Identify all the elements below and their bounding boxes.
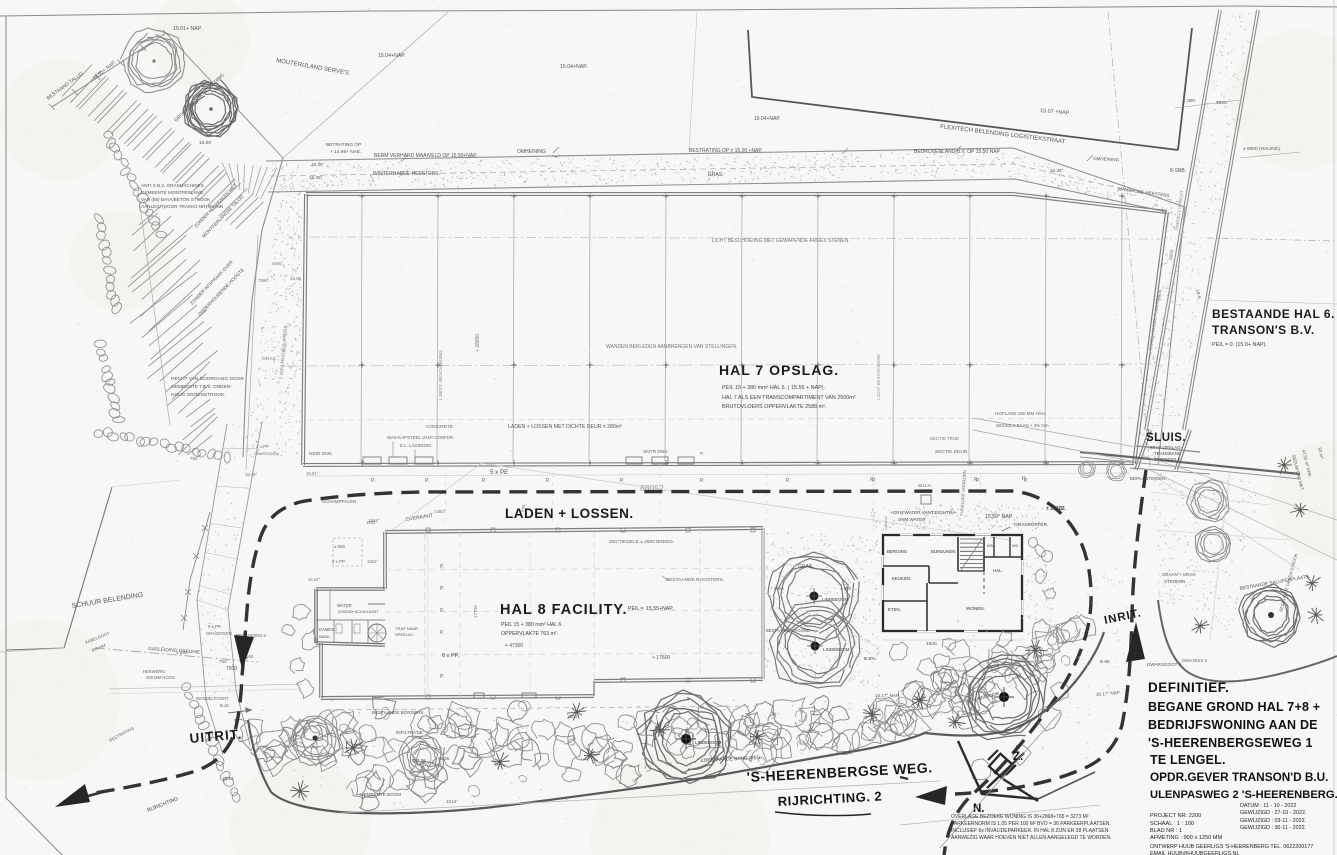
- svg-text:GEWIJZIGD : 03-11 - 2022.: GEWIJZIGD : 03-11 - 2022.: [1240, 818, 1306, 824]
- svg-text:BETRATING OP: BETRATING OP: [326, 142, 361, 148]
- svg-text:WINTERHARDE HEESTERS.: WINTERHARDE HEESTERS.: [373, 171, 440, 177]
- svg-text:HAL 8 FACILITY.: HAL 8 FACILITY.: [500, 602, 628, 618]
- svg-text:EMAIL HUUB@HUUBGEERLIGS.NL: EMAIL HUUB@HUUBGEERLIGS.NL: [1150, 851, 1239, 855]
- svg-text:SNM WATER: SNM WATER: [898, 517, 926, 522]
- svg-text:+ 47300: + 47300: [505, 643, 523, 649]
- svg-text:GRAS: GRAS: [798, 564, 813, 570]
- svg-text:HAL.: HAL.: [993, 568, 1003, 573]
- svg-text:15.45°: 15.45°: [309, 175, 322, 180]
- svg-text:± 650: ± 650: [334, 544, 346, 549]
- svg-text:'S-HEERENBERGSEWEG 1: 'S-HEERENBERGSEWEG 1: [1148, 736, 1313, 750]
- svg-text:+ 17600: + 17600: [652, 655, 670, 661]
- svg-text:1500.: 1500.: [926, 641, 938, 647]
- svg-text:W.U.H.: W.U.H.: [918, 483, 932, 488]
- svg-text:15.50° NAP.: 15.50° NAP.: [985, 514, 1013, 520]
- svg-text:BADK.: BADK.: [319, 634, 331, 639]
- svg-text:GEMEENTE BOOM: GEMEENTE BOOM: [360, 792, 401, 797]
- svg-text:P.: P.: [425, 478, 429, 484]
- svg-text:GEWIJZIGD : 30-11 - 2022.: GEWIJZIGD : 30-11 - 2022.: [1240, 825, 1306, 831]
- svg-text:BIJKEUKEN: BIJKEUKEN: [931, 549, 955, 554]
- svg-text:OPDR.GEVER TRANSON'D B.U.: OPDR.GEVER TRANSON'D B.U.: [1150, 770, 1328, 784]
- svg-text:GRASSTEEN: GRASSTEEN: [206, 631, 232, 636]
- svg-text:15.04+NAP.: 15.04+NAP.: [560, 64, 587, 70]
- svg-text:+GRIJ.WATER VANT EIGHTRA-: +GRIJ.WATER VANT EIGHTRA-: [890, 510, 957, 515]
- svg-text:SECTIE TRUE: SECTIE TRUE: [930, 436, 959, 441]
- svg-text:KEUKEN.: KEUKEN.: [892, 576, 911, 581]
- svg-text:WAS-KAPSTEEL VAN? CONFER.: WAS-KAPSTEEL VAN? CONFER.: [387, 435, 454, 440]
- svg-text:BESTAANDE AFGOND: BESTAANDE AFGOND: [766, 628, 810, 633]
- svg-text:15.04+NAP.: 15.04+NAP.: [754, 116, 780, 122]
- svg-text:B.36.: B.36.: [440, 756, 450, 761]
- svg-text:HAL 7 ALS EEN TRANSCOMPARTI: HAL 7 ALS EEN TRANSCOMPARTIMENT VAN 2500…: [722, 395, 856, 401]
- svg-text:SLUIS.: SLUIS.: [1146, 432, 1186, 444]
- svg-text:HAL 7 OPSLAG.: HAL 7 OPSLAG.: [719, 362, 839, 378]
- svg-text:DWA BUIS 2: DWA BUIS 2: [1182, 658, 1208, 663]
- svg-text:P.: P.: [870, 477, 874, 483]
- svg-text:P.: P.: [700, 451, 704, 457]
- svg-text:OPPERVLAKTE 763 m².: OPPERVLAKTE 763 m².: [501, 631, 558, 637]
- svg-text:HOUD GROENSTROOK.: HOUD GROENSTROOK.: [171, 392, 226, 398]
- svg-text:GEWIJZIGD : 27-10 - 2022.: GEWIJZIGD : 27-10 - 2022.: [1240, 810, 1307, 816]
- svg-text:5 x PP.: 5 x PP.: [208, 624, 222, 629]
- svg-text:WD: WD: [987, 544, 994, 548]
- svg-text:1662°: 1662°: [367, 559, 378, 564]
- svg-text:BRUTOVLOERS OPPERVLAKTE 258: BRUTOVLOERS OPPERVLAKTE 2588 m².: [722, 404, 826, 410]
- svg-text:LICHT BESCHOEIING: LICHT BESCHOEIING: [876, 353, 881, 400]
- svg-text:WANDELPOORT: WANDELPOORT: [196, 696, 229, 701]
- svg-text:4600: 4600: [272, 261, 282, 266]
- svg-text:RECHT VAN DOORGANG DOOR: RECHT VAN DOORGANG DOOR: [171, 376, 244, 382]
- svg-text:TE LENGEL.: TE LENGEL.: [1150, 753, 1226, 767]
- svg-text:BLAD NR : 1: BLAD NR : 1: [1150, 828, 1182, 834]
- svg-text:SCHAMPPALEN: SCHAMPPALEN: [322, 499, 356, 504]
- svg-text:750.: 750.: [190, 456, 199, 461]
- svg-text:SCHAAL : 1 : 100: SCHAAL : 1 : 100: [1150, 821, 1194, 827]
- svg-text:P.: P.: [440, 630, 444, 636]
- svg-text:15.35°: 15.35°: [311, 162, 324, 167]
- svg-text:750: 750: [219, 659, 227, 664]
- svg-text:ANTI X.B.2. GRASMACHINES: ANTI X.B.2. GRASMACHINES: [141, 183, 204, 188]
- svg-text:200 MM HOOG: 200 MM HOOG: [146, 675, 175, 680]
- svg-text:+ 28850: + 28850: [475, 334, 481, 352]
- svg-text:2 x PP.: 2 x PP.: [332, 559, 346, 564]
- svg-text:BERGING: BERGING: [887, 549, 908, 554]
- svg-text:PEIL = 0. (15.0+ NAP).: PEIL = 0. (15.0+ NAP).: [1212, 342, 1267, 348]
- svg-text:INCLUSIEF 6x INVALIDEPARKEER.: INCLUSIEF 6x INVALIDEPARKEER. IN HAL 8 Z…: [951, 828, 1109, 834]
- svg-text:1590°: 1590°: [567, 714, 579, 719]
- svg-text:1482°: 1482°: [434, 509, 446, 514]
- svg-text:LADEN + LOSSEN MET DIC: LADEN + LOSSEN MET DICHTE DEUR ± 280m²: [508, 424, 622, 430]
- svg-text:P.: P.: [546, 478, 550, 484]
- svg-text:R: R: [1022, 476, 1026, 482]
- svg-text:AFMETING : 900 x 1250 MM: AFMETING : 900 x 1250 MM: [1150, 835, 1222, 841]
- svg-text:BEPLANTINGEN:: BEPLANTINGEN:: [1130, 476, 1167, 481]
- svg-text:P.: P.: [440, 586, 444, 592]
- svg-text:+ 800: + 800: [840, 586, 852, 591]
- svg-text:PEIL 15 + 380 mm² HAL 6.: PEIL 15 + 380 mm² HAL 6.: [501, 622, 563, 628]
- svg-text:DWARSGOOT 2: DWARSGOOT 2: [1147, 662, 1182, 667]
- svg-text:NEIR DNK.: NEIR DNK.: [309, 451, 333, 457]
- svg-text:STROKEN: STROKEN: [1164, 579, 1185, 584]
- svg-text:BESTAANDE BORDERS: BESTAANDE BORDERS: [372, 710, 423, 715]
- svg-text:VAN (85) BAYA/BETON STROOK: VAN (85) BAYA/BETON STROOK: [141, 197, 211, 202]
- svg-text:PARKEERNORM IS 1.05 PER 100: PARKEERNORM IS 1.05 PER 100 M² BVO = 36 …: [951, 821, 1111, 827]
- svg-text:P.: P.: [700, 478, 704, 484]
- svg-text:BETONDELE: BETONDELE: [1154, 457, 1181, 462]
- svg-text:GRAS.: GRAS.: [262, 356, 277, 362]
- svg-text:INFILTRATIE: INFILTRATIE: [396, 730, 423, 735]
- svg-text:80 m² OPSLAG-: 80 m² OPSLAG-: [1150, 445, 1183, 450]
- svg-text:ONTWERP HUUB GEERLIGS 'S-: ONTWERP HUUB GEERLIGS 'S-HEERENBERG TEL.…: [1150, 844, 1313, 850]
- svg-text:B.16.: B.16.: [220, 703, 230, 708]
- svg-text:± 6000 (HALING).: ± 6000 (HALING).: [1243, 146, 1281, 152]
- svg-text:DAMES.: DAMES.: [319, 627, 335, 632]
- svg-text:6 x PP.: 6 x PP.: [442, 653, 460, 659]
- svg-text:GEMEENTE T.B.V. ONDER-: GEMEENTE T.B.V. ONDER-: [171, 384, 232, 390]
- svg-text:16.01°: 16.01°: [306, 471, 318, 476]
- svg-text:15.55+NAP.: 15.55+NAP.: [646, 606, 673, 612]
- svg-text:15.35°: 15.35°: [1050, 168, 1063, 173]
- svg-text:BEGANE GROND HAL 7+8 +: BEGANE GROND HAL 7+8 +: [1148, 700, 1320, 714]
- svg-text:HEKWERK/: HEKWERK/: [143, 669, 166, 674]
- svg-text:AANWEZIG WAAR HOEVEN NIET A: AANWEZIG WAAR HOEVEN NIET ALLEN AANGELEG…: [951, 835, 1112, 841]
- svg-text:± 300.: ± 300.: [1183, 98, 1196, 104]
- svg-text:B 8%.: B 8%.: [864, 656, 877, 662]
- svg-text:± 250: ± 250: [176, 650, 188, 655]
- svg-text:BESTAANDE HAL 6.: BESTAANDE HAL 6.: [1212, 307, 1335, 321]
- svg-text:1514°: 1514°: [446, 799, 458, 804]
- svg-text:+ 1500: + 1500: [770, 586, 784, 591]
- svg-text:GEMEENTE MONTFERLAND.: GEMEENTE MONTFERLAND.: [141, 190, 204, 195]
- svg-text:P.: P.: [786, 478, 790, 484]
- svg-text:TRANSBANK: TRANSBANK: [1154, 451, 1181, 456]
- svg-text:OVERLAGE BEZOEKE WONING IS 3: OVERLAGE BEZOEKE WONING IS 36+2968+765 =…: [951, 814, 1089, 820]
- svg-text:PEIL 15 + 380 mm² HAL 6.: PEIL 15 + 380 mm² HAL 6. ( 15.55 + NAP).: [722, 385, 825, 391]
- svg-text:15.00: 15.00: [199, 140, 211, 146]
- svg-text:15.13: 15.13: [222, 776, 234, 781]
- svg-text:DATUM : 11 - 10 - 2022: DATUM : 11 - 10 - 2022: [1240, 803, 1296, 809]
- svg-text:P.: P.: [371, 478, 375, 484]
- svg-text:SECTIE DEUR.: SECTIE DEUR.: [935, 449, 969, 455]
- svg-text:SECTIEDELE ± 4500 BREED.: SECTIEDELE ± 4500 BREED.: [609, 539, 674, 545]
- svg-text:E.L. LADINGEN: E.L. LADINGEN: [400, 443, 431, 448]
- svg-text:WONEN.: WONEN.: [966, 606, 985, 611]
- svg-text:P.: P.: [440, 674, 444, 680]
- svg-text:ETEN.: ETEN.: [888, 607, 901, 612]
- svg-text:2 x PP: 2 x PP: [256, 444, 269, 449]
- svg-text:BESTAANDE ROOSTERS.: BESTAANDE ROOSTERS.: [666, 577, 724, 583]
- svg-text:DEFINITIEF.: DEFINITIEF.: [1148, 680, 1229, 695]
- svg-text:WISSELS BAAN + 2% mm.: WISSELS BAAN + 2% mm.: [996, 423, 1050, 428]
- svg-text:GRAAN + GRAS-: GRAAN + GRAS-: [1162, 572, 1197, 577]
- svg-text:WC: WC: [1012, 544, 1019, 548]
- svg-text:P.: P.: [440, 608, 444, 614]
- svg-text:TRANSON'S B.V.: TRANSON'S B.V.: [1212, 323, 1315, 337]
- svg-text:PROJECT NR: 2200: PROJECT NR: 2200: [1150, 813, 1201, 819]
- svg-text:1862°: 1862°: [366, 520, 377, 525]
- svg-text:ULENPASWEG 2 'S-HEERENBERG.: ULENPASWEG 2 'S-HEERENBERG.: [1150, 789, 1337, 801]
- svg-text:EIGEND+SCHUILKAST: EIGEND+SCHUILKAST: [338, 610, 379, 614]
- svg-text:OMHEINING: OMHEINING: [517, 149, 546, 155]
- svg-text:16.04°: 16.04°: [308, 577, 320, 582]
- svg-text:Z.: Z.: [1013, 751, 1023, 763]
- svg-text:GRASKOFFER.: GRASKOFFER.: [1014, 522, 1048, 528]
- svg-text:15.05: 15.05: [290, 276, 302, 281]
- svg-text:BEDRIJFSWONING AAN DE: BEDRIJFSWONING AAN DE: [1148, 718, 1318, 732]
- svg-text:WATER.: WATER.: [337, 603, 353, 608]
- svg-text:8-SNB.: 8-SNB.: [1170, 168, 1186, 174]
- svg-text:P.: P.: [482, 478, 486, 484]
- svg-text:HOFLAKE 180 MM HSA.: HOFLAKE 180 MM HSA.: [995, 411, 1046, 416]
- svg-text:LINDEBOOM: LINDEBOOM: [695, 740, 722, 745]
- svg-text:WANDEN BEKLEDEN AANBRENGEN: WANDEN BEKLEDEN AANBRENGEN VAN STELLINGE…: [606, 344, 737, 350]
- svg-text:15.17° NAP.: 15.17° NAP.: [875, 693, 900, 698]
- svg-text:L.BEST. BESCHOEIING: L.BEST. BESCHOEIING: [438, 350, 443, 400]
- svg-text:TRAP NAAR: TRAP NAAR: [395, 626, 418, 631]
- svg-text:GRASSTEEN: GRASSTEEN: [254, 451, 279, 456]
- svg-text:+ 14.95+ NAE.: + 14.95+ NAE.: [330, 149, 361, 155]
- svg-text:LINDEBOOM.: LINDEBOOM.: [823, 647, 851, 652]
- svg-text:SNTR DNK.: SNTR DNK.: [643, 449, 669, 455]
- svg-text:P.: P.: [440, 564, 444, 570]
- svg-text:SPEELVIJ.: SPEELVIJ.: [395, 632, 415, 637]
- svg-text:7500: 7500: [226, 666, 237, 672]
- svg-text:LICHT BESCHOEIING MET GEWAPEND: LICHT BESCHOEIING MET GEWAPENDE ARGEX ST…: [712, 238, 850, 244]
- svg-text:P.: P.: [974, 477, 978, 483]
- svg-text:BESTRATING OP ± 15.00 +NAP.: BESTRATING OP ± 15.00 +NAP.: [689, 148, 762, 154]
- svg-text:15.01+ NAP.: 15.01+ NAP.: [173, 26, 202, 32]
- svg-text:BERM VERHARD MAAIVELD OP 15.5: BERM VERHARD MAAIVELD OP 15.50+NAP.: [374, 153, 477, 159]
- svg-text:PEIL =: PEIL =: [628, 606, 644, 612]
- svg-text:GRAS.: GRAS.: [708, 172, 724, 178]
- svg-text:17700: 17700: [473, 605, 478, 618]
- svg-text:CONCRETE: CONCRETE: [426, 424, 453, 430]
- svg-text:7590: 7590: [258, 278, 268, 283]
- svg-text:B 86.: B 86.: [1100, 659, 1111, 664]
- svg-text:D B.36.: D B.36.: [412, 758, 427, 763]
- svg-text:15.04+NAP.: 15.04+NAP.: [378, 53, 405, 59]
